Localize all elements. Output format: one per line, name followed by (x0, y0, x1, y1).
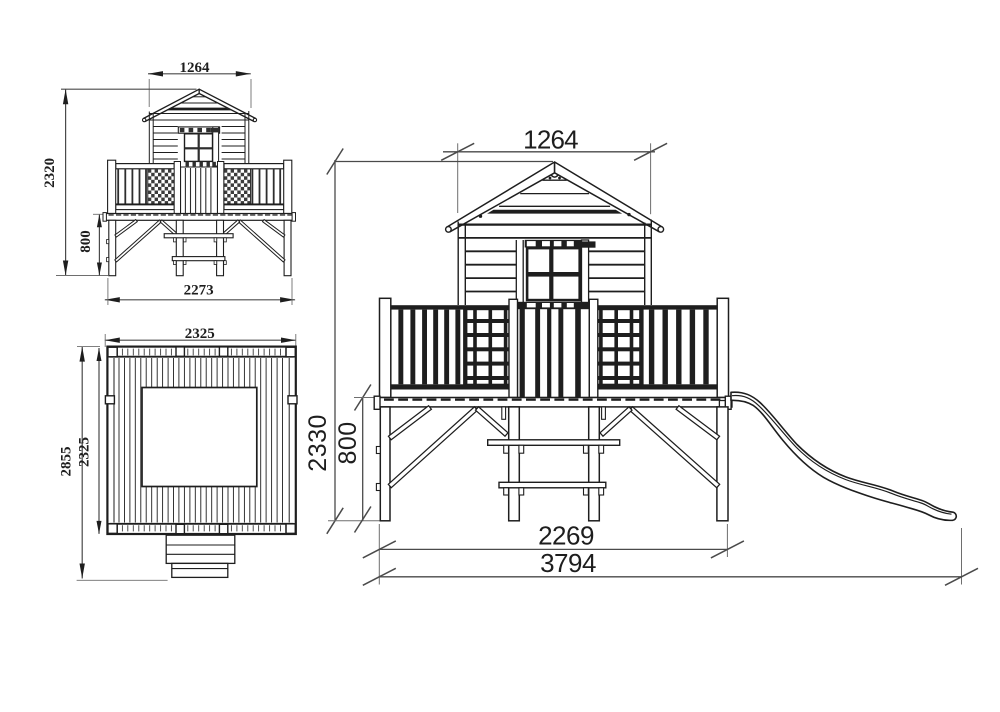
svg-text:800: 800 (78, 230, 94, 253)
svg-text:800: 800 (334, 421, 362, 464)
svg-text:2330: 2330 (304, 414, 332, 472)
svg-text:3794: 3794 (540, 548, 596, 578)
svg-text:2273: 2273 (184, 283, 214, 299)
svg-text:1264: 1264 (180, 60, 211, 76)
svg-text:2325: 2325 (185, 326, 215, 342)
svg-text:1264: 1264 (523, 125, 578, 155)
svg-text:2325: 2325 (77, 437, 93, 467)
svg-text:2320: 2320 (42, 158, 58, 188)
svg-text:2269: 2269 (538, 521, 594, 551)
svg-text:2855: 2855 (59, 447, 75, 477)
